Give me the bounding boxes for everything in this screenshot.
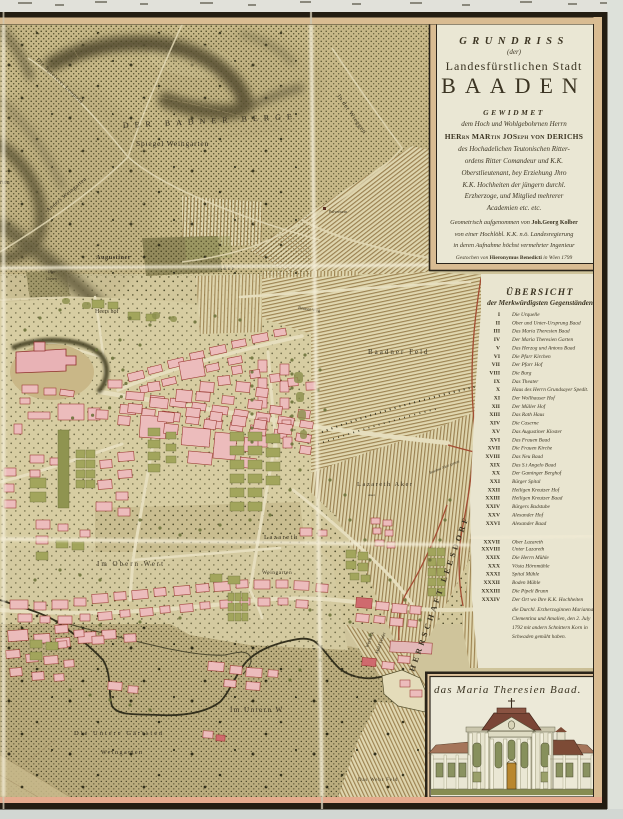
svg-text:K.K. Hochheiten der jüngern du: K.K. Hochheiten der jüngern durchl.	[462, 181, 566, 189]
svg-text:ordens Ritter Comandeur und K.: ordens Ritter Comandeur und K.K.	[465, 157, 563, 165]
svg-text:Alexander Hof: Alexander Hof	[511, 511, 545, 518]
svg-text:Das Neu Baad: Das Neu Baad	[511, 454, 543, 460]
svg-text:XI: XI	[494, 396, 500, 402]
svg-text:II: II	[496, 320, 500, 326]
svg-text:XIX: XIX	[490, 462, 500, 468]
svg-text:Spital Mühle: Spital Mühle	[512, 572, 540, 578]
svg-text:Haus des Herrn Grundsayer Sped: Haus des Herrn Grundsayer Spedit.	[511, 387, 588, 393]
svg-text:XXXII: XXXII	[484, 580, 500, 586]
svg-text:der Merkwürdigsten Gegenstände: der Merkwürdigsten Gegenständen	[487, 298, 593, 307]
svg-text:XXVIII: XXVIII	[481, 547, 500, 553]
svg-text:VIII: VIII	[489, 370, 500, 376]
svg-text:Unter Lazareth: Unter Lazareth	[512, 547, 545, 553]
svg-text:Die Burg: Die Burg	[511, 370, 532, 376]
svg-text:XVI: XVI	[490, 437, 500, 443]
svg-text:XXV: XXV	[488, 512, 500, 518]
svg-text:XIV: XIV	[490, 421, 500, 427]
svg-text:das Maria Theresien Baad.: das Maria Theresien Baad.	[434, 684, 581, 696]
svg-text:Die Pipeli Brunn: Die Pipeli Brunn	[511, 589, 549, 595]
svg-text:XXIII: XXIII	[485, 496, 500, 502]
svg-text:Der Pfarr Hof: Der Pfarr Hof	[511, 361, 544, 368]
svg-text:VII: VII	[492, 362, 500, 368]
svg-text:XX: XX	[492, 471, 500, 477]
svg-text:XXXI: XXXI	[486, 572, 500, 578]
svg-text:III: III	[493, 329, 500, 335]
svg-text:Der Müller Hof: Der Müller Hof	[511, 403, 547, 410]
svg-text:die Durchl. Erzherzoginnen Mar: die Durchl. Erzherzoginnen Marianna,	[512, 607, 595, 613]
svg-text:X: X	[496, 387, 500, 393]
svg-text:XXXIV: XXXIV	[482, 597, 500, 603]
svg-text:1792 mit andern Schnittern Kor: 1792 mit andern Schnittern Korn in	[512, 625, 588, 631]
svg-text:Bürger Spital: Bürger Spital	[512, 479, 541, 485]
svg-text:Die Frauen Kirche: Die Frauen Kirche	[511, 446, 553, 452]
svg-text:XXIV: XXIV	[486, 504, 500, 510]
svg-text:XII: XII	[492, 404, 500, 410]
svg-text:Die Caserne: Die Caserne	[511, 421, 539, 427]
svg-text:XXII: XXII	[488, 487, 500, 493]
svg-text:(der): (der)	[507, 48, 522, 56]
svg-text:Das Frauen Baad: Das Frauen Baad	[511, 437, 550, 443]
svg-text:XIII: XIII	[489, 412, 500, 418]
svg-text:Erzherzoge, und Mitglied mehre: Erzherzoge, und Mitglied mehrerer	[464, 192, 564, 200]
svg-text:Vösta Hörnmühle: Vösta Hörnmühle	[512, 563, 550, 569]
svg-text:in deren Aufnahme höchst verme: in deren Aufnahme höchst vermehrter Inge…	[453, 242, 575, 249]
svg-text:GRUNDRISS: GRUNDRISS	[459, 36, 569, 47]
svg-text:Ober Lazareth: Ober Lazareth	[512, 540, 543, 546]
svg-text:XVIII: XVIII	[485, 454, 500, 460]
svg-text:XXI: XXI	[490, 479, 500, 485]
svg-text:Das Maria Theresien Baad: Das Maria Theresien Baad	[511, 329, 570, 335]
svg-text:Der Wollhauser Hof: Der Wollhauser Hof	[511, 395, 556, 402]
svg-text:des Hochadelichen Teutonischen: des Hochadelichen Teutonischen Ritter-	[458, 145, 570, 153]
svg-text:Oberstlieutenant, bey Erziehun: Oberstlieutenant, bey Erziehung Jhro	[461, 169, 567, 177]
svg-text:von einer Hochlöbl. K.K. n.ö.: von einer Hochlöbl. K.K. n.ö. Landesregi…	[455, 231, 574, 238]
svg-text:Das S.t Angelo Baad: Das S.t Angelo Baad	[511, 462, 556, 468]
svg-text:I: I	[498, 312, 500, 318]
svg-text:Alexander Baad: Alexander Baad	[511, 521, 547, 527]
svg-text:Heiligen Kreutzer Hof: Heiligen Kreutzer Hof	[511, 486, 561, 493]
svg-text:Die Herrn Mühle: Die Herrn Mühle	[511, 555, 549, 561]
svg-text:Das Herzog und Antons Baad: Das Herzog und Antons Baad	[511, 345, 576, 351]
svg-text:Ober und Unter-Ursprung Baad: Ober und Unter-Ursprung Baad	[512, 320, 581, 326]
svg-text:Clementina und Amalien, den 2.: Clementina und Amalien, den 2. July	[512, 616, 591, 622]
svg-text:Boden Mühle: Boden Mühle	[512, 580, 541, 586]
svg-text:IX: IX	[494, 379, 500, 385]
svg-text:dem Hoch und Wohlgebohrnen Her: dem Hoch und Wohlgebohrnen Herrn	[461, 120, 567, 128]
svg-text:Gestochen von Hieronymus Bened: Gestochen von Hieronymus Benedicti in Wi…	[456, 255, 573, 261]
svg-text:XVII: XVII	[488, 446, 500, 452]
svg-text:XXXIII: XXXIII	[481, 589, 500, 595]
svg-text:Geometrisch aufgenommen von Jo: Geometrisch aufgenommen von Joh.Georg Ko…	[450, 219, 578, 226]
svg-text:Der Ort wo Ihre K.K. Hochheite: Der Ort wo Ihre K.K. Hochheiten	[511, 597, 584, 603]
svg-text:Das Theater: Das Theater	[511, 379, 539, 385]
svg-text:Die Urquelle: Die Urquelle	[511, 312, 540, 318]
svg-text:VI: VI	[494, 354, 500, 360]
svg-text:Der Gaminger Berghof: Der Gaminger Berghof	[511, 470, 563, 477]
svg-text:BAADEN: BAADEN	[441, 73, 587, 98]
svg-text:GEWIDMET: GEWIDMET	[483, 108, 545, 117]
svg-text:Landesfürstlichen Stadt: Landesfürstlichen Stadt	[446, 59, 583, 73]
svg-text:Das Augustiner Kloster: Das Augustiner Kloster	[511, 429, 563, 435]
svg-text:XXX: XXX	[488, 563, 500, 569]
svg-text:Das Rath Haus: Das Rath Haus	[511, 412, 544, 418]
svg-text:IV: IV	[494, 337, 500, 343]
svg-text:Academien etc. etc.: Academien etc. etc.	[486, 204, 542, 212]
svg-text:Heiligen Kreutzer Baad: Heiligen Kreutzer Baad	[511, 496, 563, 502]
svg-text:Schwaden gemäht haben.: Schwaden gemäht haben.	[512, 634, 566, 640]
svg-text:Bürgers Badstube: Bürgers Badstube	[512, 504, 551, 510]
svg-text:V: V	[496, 345, 500, 351]
svg-text:XXVII: XXVII	[484, 540, 500, 546]
svg-text:Der Maria Theresien Garten: Der Maria Theresien Garten	[511, 337, 574, 343]
svg-text:XV: XV	[492, 429, 500, 435]
svg-text:XXIX: XXIX	[486, 555, 500, 561]
svg-text:XXVI: XXVI	[486, 521, 500, 527]
svg-text:Die Pfarr Kirchen: Die Pfarr Kirchen	[511, 353, 551, 360]
